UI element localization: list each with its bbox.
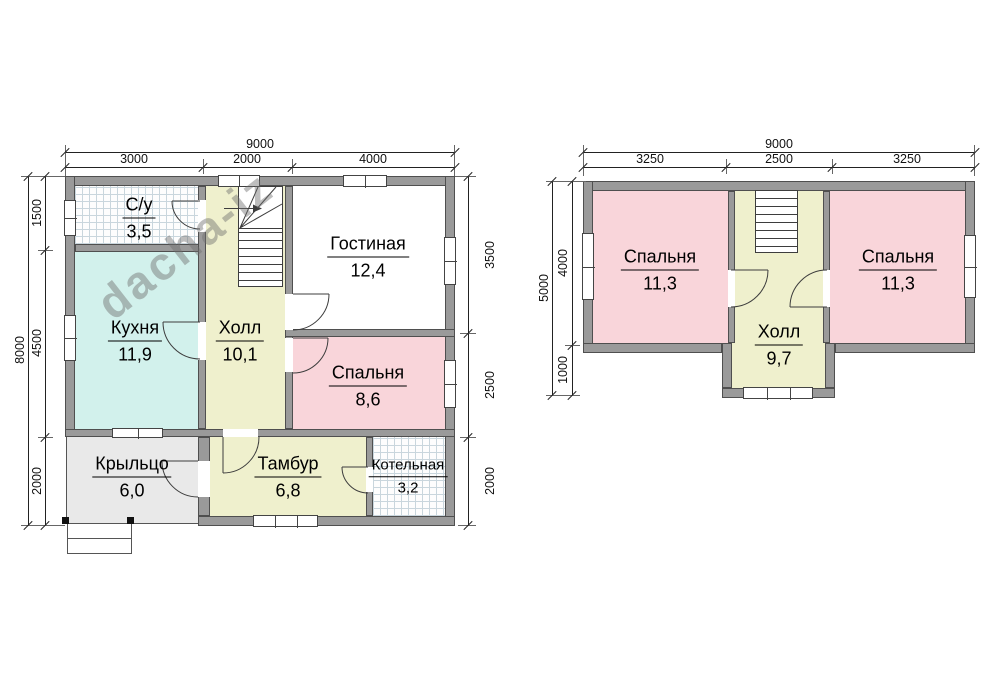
room-label-porch: Крыльцо 6,0 — [92, 453, 171, 502]
dimension-line — [468, 176, 469, 525]
room-area: 10,1 — [216, 341, 264, 366]
room-area: 11,3 — [859, 270, 937, 295]
dim-label: 2000 — [483, 467, 497, 495]
room-name: Тамбур — [254, 453, 321, 478]
porch-steps — [68, 524, 132, 554]
room-name: Холл — [755, 321, 803, 346]
dim-label: 9000 — [246, 137, 274, 151]
dimension-line — [572, 181, 573, 395]
room-area: 6,8 — [254, 477, 321, 502]
room-name: Крыльцо — [92, 453, 171, 478]
dim-label: 2000 — [233, 152, 261, 166]
room-name: Гостиная — [327, 233, 409, 258]
room-label-hall2: Холл 9,7 — [755, 321, 803, 370]
dim-label: 2500 — [765, 152, 793, 166]
dim-label: 4000 — [556, 249, 570, 277]
room-label-hall1: Холл 10,1 — [216, 317, 264, 366]
dimension-line — [583, 167, 975, 168]
room-label-living: Гостиная 12,4 — [327, 233, 409, 282]
dim-label: 2500 — [483, 371, 497, 399]
room-area: 12,4 — [327, 257, 409, 282]
dim-label: 5000 — [537, 274, 551, 302]
room-area: 3,5 — [123, 218, 156, 243]
room-area: 11,9 — [108, 341, 162, 366]
dim-label: 3000 — [120, 152, 148, 166]
dim-label: 4500 — [30, 329, 44, 357]
room-name: С/у — [123, 194, 156, 219]
room-label-bathroom: С/у 3,5 — [123, 194, 156, 243]
room-area: 6,0 — [92, 477, 171, 502]
dimension-line — [45, 176, 46, 525]
dim-label: 9000 — [765, 137, 793, 151]
room-label-bedroom1: Спальня 8,6 — [329, 362, 407, 411]
room-area: 8,6 — [329, 386, 407, 411]
dimension-line — [65, 167, 455, 168]
room-name: Спальня — [859, 246, 937, 271]
room-label-bedroom2: Спальня 11,3 — [621, 246, 699, 295]
room-name: Котельная — [369, 456, 448, 477]
door-arc — [731, 270, 768, 307]
stairs-floor2 — [756, 191, 798, 253]
room-name: Холл — [216, 317, 264, 342]
dim-label: 1500 — [30, 199, 44, 227]
dimension-line — [28, 176, 29, 525]
floor-plan-canvas: dacha-iz С/у 3,5 Кухня 11,9 Холл 10,1 Го… — [0, 0, 1000, 700]
room-label-tambour: Тамбур 6,8 — [254, 453, 321, 502]
dim-label: 3500 — [483, 241, 497, 269]
room-label-boiler: Котельная 3,2 — [369, 456, 448, 498]
room-area: 11,3 — [621, 270, 699, 295]
room-name: Кухня — [108, 317, 162, 342]
door-arc — [163, 322, 200, 359]
door-arc — [293, 338, 328, 373]
door-arc — [293, 294, 329, 330]
room-label-bedroom3: Спальня 11,3 — [859, 246, 937, 295]
dim-label: 3250 — [893, 152, 921, 166]
dim-label: 3250 — [636, 152, 664, 166]
door-arc — [790, 270, 827, 307]
room-area: 3,2 — [369, 477, 448, 498]
dim-label: 4000 — [359, 152, 387, 166]
dim-label: 1000 — [556, 356, 570, 384]
room-label-kitchen: Кухня 11,9 — [108, 317, 162, 366]
door-arc — [342, 467, 368, 493]
room-name: Спальня — [621, 246, 699, 271]
dimension-line — [552, 181, 553, 395]
dim-label: 8000 — [13, 336, 27, 364]
dim-label: 2000 — [30, 467, 44, 495]
room-area: 9,7 — [755, 345, 803, 370]
room-name: Спальня — [329, 362, 407, 387]
